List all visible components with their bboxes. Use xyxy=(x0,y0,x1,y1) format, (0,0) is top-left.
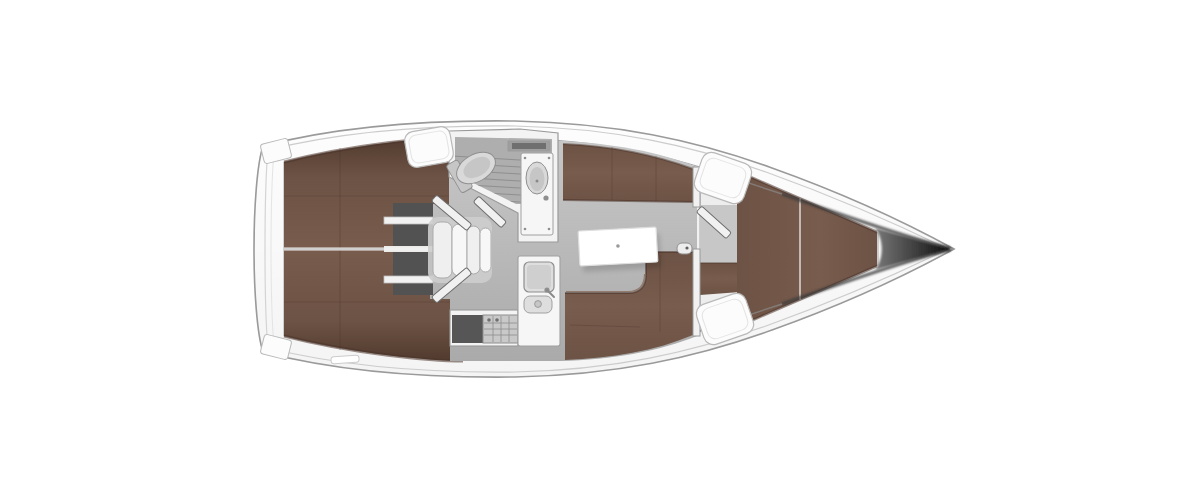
step-3 xyxy=(467,226,480,274)
galley-oven xyxy=(524,296,552,313)
washbasin-drain xyxy=(536,180,539,183)
counter-screw xyxy=(548,228,551,231)
washbasin-faucet xyxy=(543,195,548,200)
step-2 xyxy=(452,224,467,276)
shelf-bar-lower xyxy=(384,276,433,283)
galley-sink xyxy=(524,262,554,297)
mast-post xyxy=(677,243,692,254)
engine-compartment-lower xyxy=(393,252,433,295)
shelf-bar-center xyxy=(384,246,433,252)
salon-table xyxy=(578,227,661,272)
forward-cabin-seat xyxy=(700,263,740,295)
washbasin-inner xyxy=(530,167,545,191)
galley-stove xyxy=(483,315,518,343)
galley-inset-dark xyxy=(452,315,483,343)
engine-compartment-upper xyxy=(393,203,433,246)
step-1 xyxy=(433,222,452,278)
yacht-floor-plan-canvas xyxy=(0,0,1200,500)
companionway-steps xyxy=(433,222,491,278)
washbasin-unit xyxy=(521,153,553,235)
counter-screw xyxy=(524,228,527,231)
shelf-bar-upper xyxy=(384,217,433,224)
deck-hatch-companionway xyxy=(403,125,455,168)
step-4 xyxy=(480,228,491,272)
stern-deck-strip xyxy=(331,355,359,364)
counter-screw xyxy=(548,157,551,160)
salon xyxy=(563,144,693,360)
stove-knob xyxy=(495,318,499,322)
head-shelf-slot xyxy=(512,143,546,149)
counter-screw xyxy=(524,157,527,160)
yacht-floor-plan xyxy=(0,0,1200,500)
stove-knob xyxy=(487,318,491,322)
